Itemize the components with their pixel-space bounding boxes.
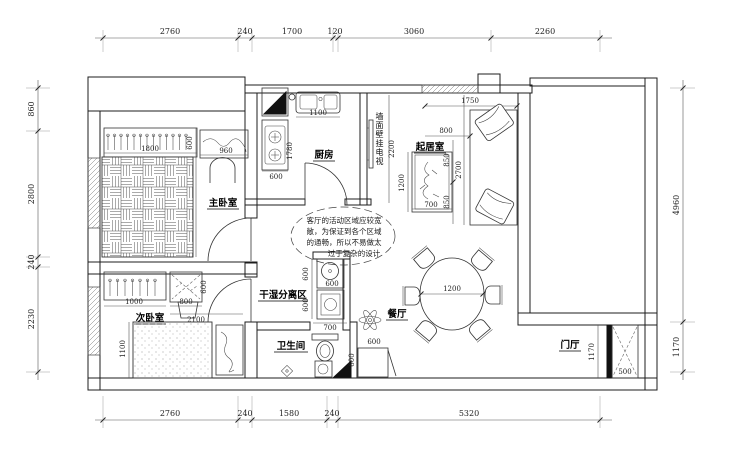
dim-sofa-seat-a: 850	[443, 153, 451, 166]
bottom-outer-wall	[88, 378, 657, 390]
dining-label-group: 餐厅	[386, 308, 408, 320]
second-bed	[133, 322, 212, 378]
dining-room: 1200 餐厅	[386, 246, 502, 344]
dim-top-5: 3060	[404, 27, 424, 36]
coffee-table-plant	[420, 162, 439, 199]
void-top-wall	[530, 78, 645, 86]
master-bedroom-label: 主卧室	[209, 197, 238, 209]
second-nightstand-decor	[221, 332, 234, 372]
dim-top-2: 240	[237, 27, 252, 36]
dim-right-1: 4960	[672, 195, 681, 215]
dim-right-2: 1170	[672, 337, 681, 357]
annotation-line-3: 的通畅，所以不易做太	[307, 237, 382, 247]
master-window	[88, 158, 100, 228]
master-bedroom: 1800 600 2200 960 主卧室	[102, 128, 248, 257]
second-desk-sketch	[172, 275, 200, 299]
right-extension-lines	[670, 88, 695, 372]
master-bedroom-door	[208, 218, 251, 261]
sink-bowl-left	[300, 95, 317, 109]
dim-dining-table: 1200	[443, 285, 461, 293]
annotation-line-2: 敞，为保证到各个区域	[307, 226, 382, 236]
dim-master-wardrobe: 1800	[141, 145, 159, 153]
dim-left-1: 860	[27, 101, 36, 116]
dim-coffee-table-length: 1200	[398, 174, 406, 192]
dim-basin-width: 600	[325, 280, 338, 288]
shower-base	[315, 361, 332, 377]
washbasin	[322, 263, 339, 280]
tv-wall	[360, 93, 367, 205]
dim-kitchen-counter: 1780	[286, 142, 294, 160]
tv-wall-note: 墙面壁挂电视	[373, 112, 386, 176]
dim-top-3: 1700	[282, 27, 302, 36]
second-bedroom-door	[208, 279, 251, 322]
living-room-label-group: 起居室	[414, 141, 446, 153]
dim-bottom-4: 240	[324, 409, 339, 418]
annotation-line-1: 客厅的活动区域应较宽	[307, 215, 382, 225]
sofa-pillow-1	[474, 103, 515, 142]
toilet-tank	[312, 334, 338, 340]
annotation-cloud: 客厅的活动区域应较宽 敞，为保证到各个区域 的通畅，所以不易做太 过于复杂的设计	[291, 207, 395, 265]
hall-cabinet	[358, 348, 388, 377]
bedroom-wall-mid	[245, 263, 257, 277]
dim-sofa-length: 2700	[455, 161, 463, 179]
dim-hall-cabinet-depth: 600	[348, 353, 356, 366]
master-room-label: 主卧室	[207, 197, 239, 209]
dim-basin-depth: 600	[302, 267, 310, 280]
dim-tv-wall: 2200	[388, 140, 396, 158]
master-vanity-stool	[210, 158, 235, 183]
dim-coffee-table-width: 700	[424, 201, 437, 209]
dim-bottom-1: 2760	[160, 409, 180, 418]
top-column	[478, 74, 500, 93]
dim-master-vanity: 960	[219, 147, 232, 155]
dry-wet-zone: 600 600 600 700 干湿分离区	[258, 259, 347, 332]
kitchen-counter	[262, 120, 288, 170]
bathroom-label: 卫生间	[277, 340, 306, 352]
second-nightstand	[216, 325, 243, 375]
dim-left-4: 2230	[27, 309, 36, 329]
living-room: 1750 800 850 850 2700 1200 700 起居室	[398, 95, 520, 225]
dim-second-bed: 1100	[119, 340, 127, 358]
dim-second-desk-depth: 600	[200, 280, 208, 293]
dim-master-wardrobe-depth: 600	[186, 136, 194, 149]
kitchen-bottom-wall-left	[245, 199, 305, 205]
living-room-label: 起居室	[415, 141, 445, 153]
kitchen-door	[305, 163, 347, 205]
annotation-line-4: 过于复杂的设计	[328, 248, 381, 258]
toilet-bowl	[317, 341, 334, 361]
entry-hall-label: 门厅	[560, 339, 580, 351]
dining-room-label: 餐厅	[386, 308, 407, 320]
living-room-window	[422, 85, 478, 93]
dim-bottom-2: 240	[237, 409, 252, 418]
kitchen-label: 厨房	[313, 149, 335, 161]
dim-top-4: 120	[327, 27, 342, 36]
master-bed	[102, 157, 193, 257]
dim-top-6: 2260	[535, 27, 555, 36]
dim-wet-width: 700	[323, 324, 336, 332]
dim-entry-cabinet-width: 500	[618, 368, 631, 376]
sink-bowl-right	[324, 95, 337, 109]
bedroom-wall-lower	[245, 322, 257, 378]
dim-second-wardrobe: 1000	[125, 298, 143, 306]
dim-hall-cabinet-width: 600	[367, 338, 380, 346]
dim-left-3: 240	[27, 254, 36, 269]
dining-chairs	[403, 246, 502, 344]
second-bedroom: 1000 800 600 2100 次卧室 1100	[104, 272, 243, 378]
void-bottom-wall	[518, 313, 657, 325]
second-bedroom-window	[88, 287, 100, 355]
dim-kitchen-sink: 1100	[309, 109, 327, 117]
dim-bottom-5: 5320	[459, 409, 479, 418]
dim-left-2: 2800	[27, 184, 36, 204]
second-wardrobe-hangers	[109, 279, 157, 296]
bathroom-label-group: 卫生间	[274, 340, 308, 352]
plant	[359, 309, 381, 332]
void-left-wall	[518, 93, 530, 313]
entry-hall: 门厅 1170 500	[559, 325, 638, 378]
entry-label-group: 门厅	[559, 339, 581, 351]
dim-sofa-seat-b: 850	[443, 195, 451, 208]
dry-wet-zone-label: 干湿分离区	[259, 289, 307, 301]
wet-zone-label-group: 干湿分离区	[258, 289, 308, 301]
dim-top-1: 2760	[160, 27, 180, 36]
dim-kitchen-counter-width: 600	[269, 173, 282, 181]
second-wardrobe	[104, 272, 166, 300]
right-outer-wall	[645, 78, 657, 390]
sink-faucet	[319, 97, 322, 100]
dim-sofa-depth: 800	[439, 127, 452, 135]
floor-drain	[281, 365, 292, 376]
shoe-cabinet-back	[607, 325, 612, 378]
ac-ledge	[88, 77, 245, 111]
gas-point	[289, 94, 295, 100]
kitchen: 1100 1780 600 厨房	[262, 88, 340, 181]
dim-bottom-3: 1580	[279, 409, 299, 418]
dim-entry-cabinet-height: 1170	[588, 343, 596, 361]
kitchen-room-label: 厨房	[314, 149, 333, 161]
fridge-triangle	[264, 92, 286, 114]
bathroom-top-wall	[257, 322, 310, 330]
sofa-pillow-2	[475, 188, 515, 225]
floor-plan-canvas: 2760 240 1700 120 3060 2260 2760 240 158…	[0, 0, 740, 462]
